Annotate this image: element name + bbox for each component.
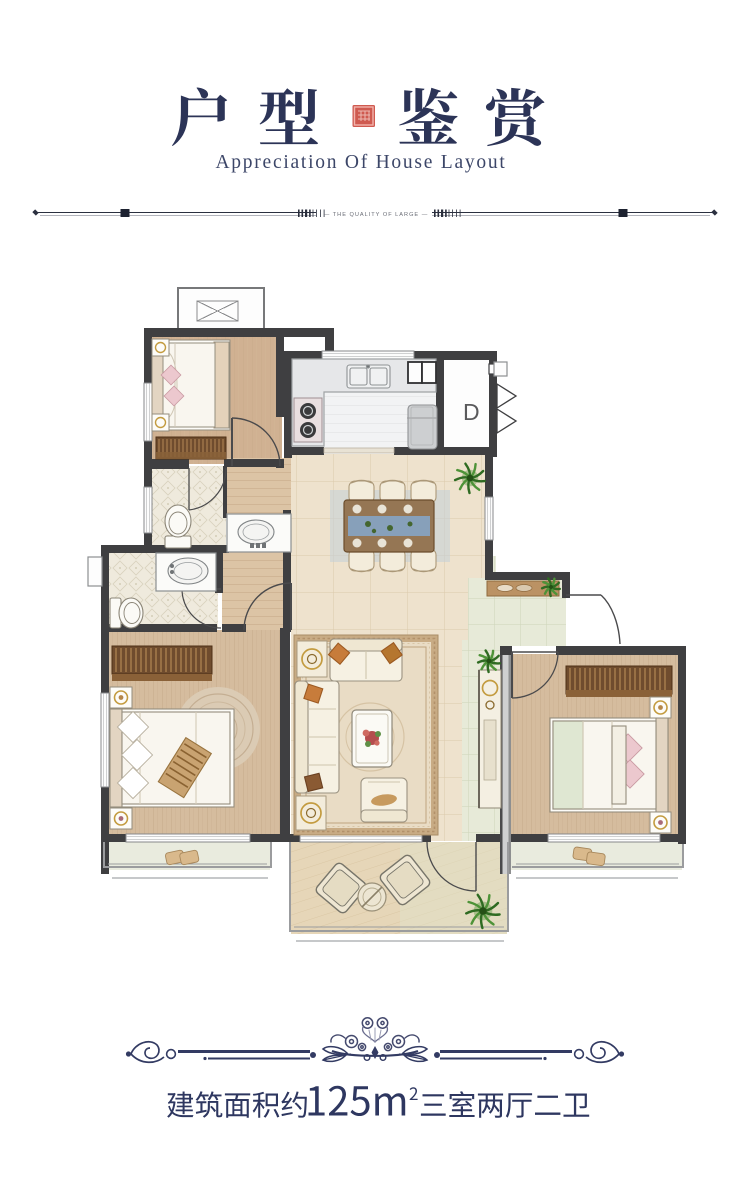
svg-text:D: D [463, 399, 480, 425]
svg-text:— THE QUALITY OF LARGE —: — THE QUALITY OF LARGE — [324, 212, 429, 218]
svg-text:Appreciation Of House Layout: Appreciation Of House Layout [215, 152, 506, 173]
